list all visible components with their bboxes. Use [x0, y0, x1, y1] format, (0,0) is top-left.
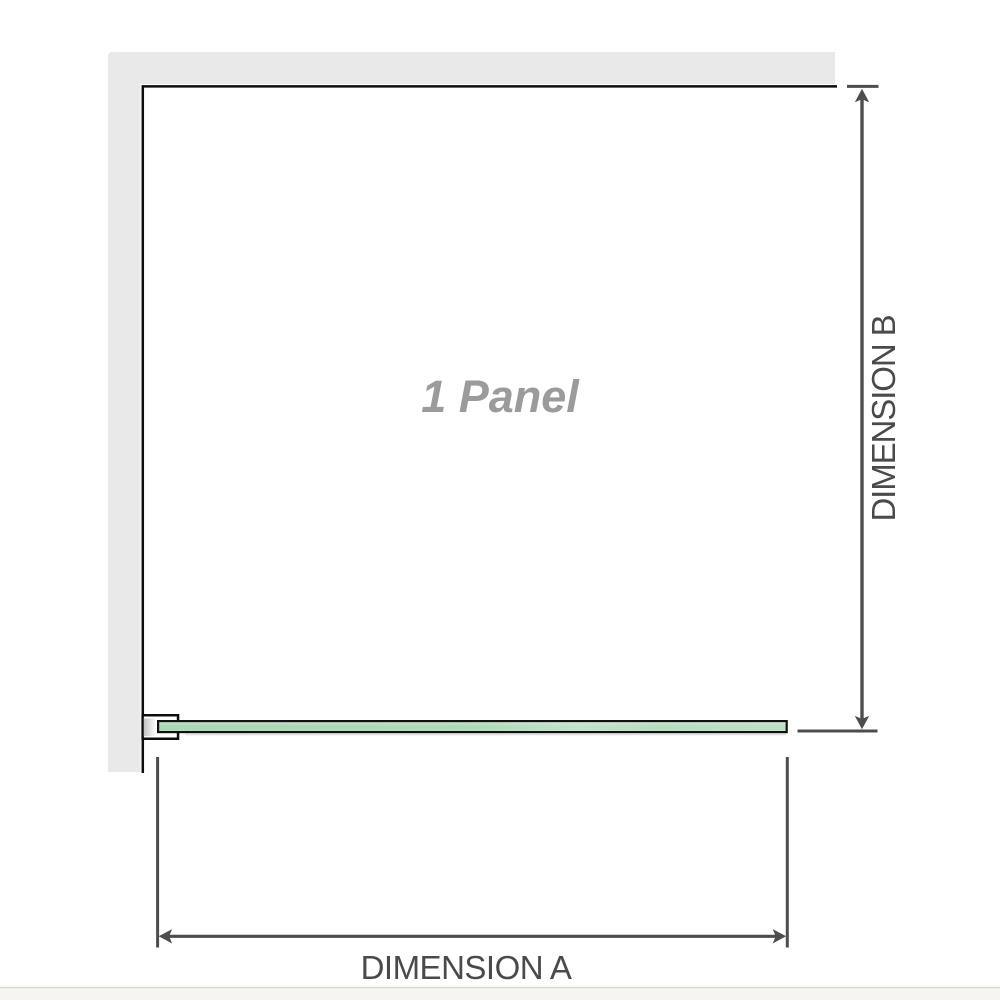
- svg-text:DIMENSION A: DIMENSION A: [361, 949, 572, 986]
- svg-text:DIMENSION B: DIMENSION B: [865, 315, 902, 521]
- svg-text:1 Panel: 1 Panel: [421, 371, 580, 422]
